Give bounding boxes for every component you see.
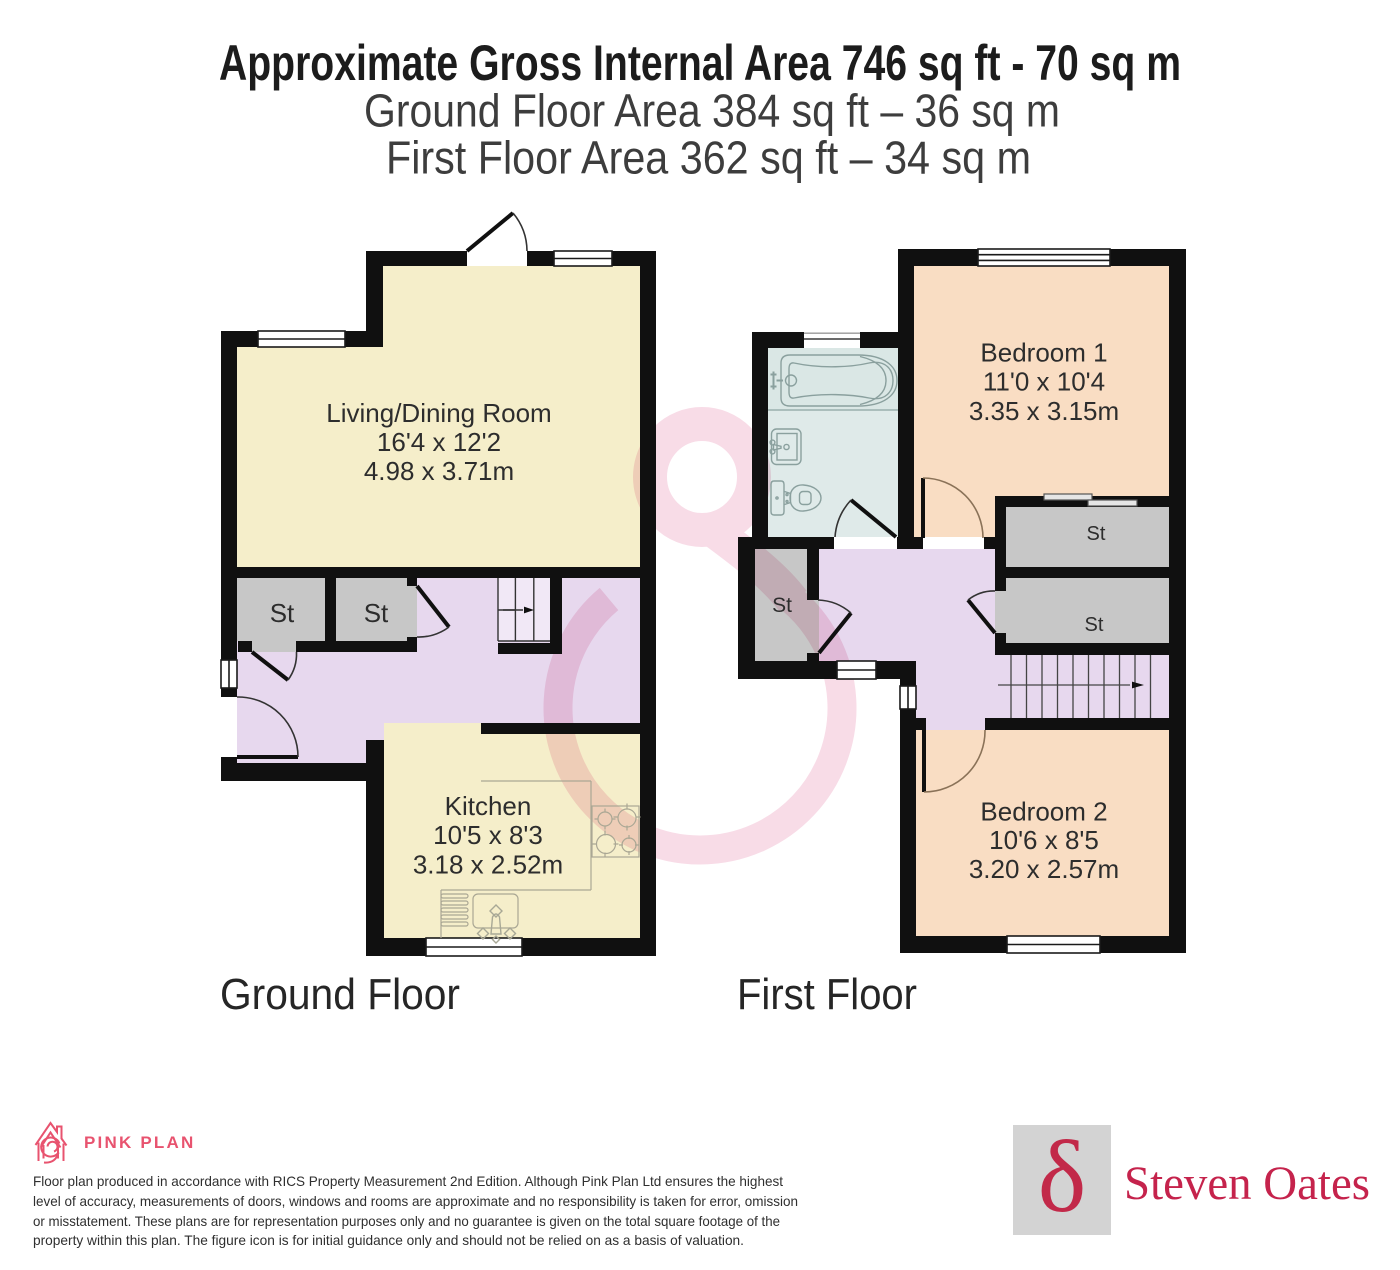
svg-text:St: St	[270, 598, 295, 628]
svg-text:3.35 x 3.15m: 3.35 x 3.15m	[969, 396, 1119, 426]
svg-text:10'6 x 8'5: 10'6 x 8'5	[989, 825, 1099, 855]
svg-text:Bedroom 1: Bedroom 1	[980, 338, 1107, 368]
svg-text:δ: δ	[1038, 1120, 1087, 1234]
svg-text:First Floor Area 362 sq ft – 3: First Floor Area 362 sq ft – 34 sq m	[386, 132, 1031, 184]
svg-text:Ground Floor: Ground Floor	[220, 970, 460, 1019]
svg-text:10'5 x 8'3: 10'5 x 8'3	[433, 820, 543, 850]
svg-text:St: St	[364, 598, 389, 628]
svg-text:3.20 x 2.57m: 3.20 x 2.57m	[969, 854, 1119, 884]
svg-text:4.98 x 3.71m: 4.98 x 3.71m	[364, 456, 514, 486]
svg-text:property within this plan. The: property within this plan. The figure ic…	[33, 1232, 744, 1248]
svg-text:Kitchen: Kitchen	[445, 791, 532, 821]
svg-text:Steven Oates: Steven Oates	[1124, 1157, 1370, 1210]
svg-text:First Floor: First Floor	[737, 970, 917, 1019]
svg-text:level of accuracy, measurement: level of accuracy, measurements of doors…	[33, 1193, 798, 1209]
svg-text:Floor plan produced in accorda: Floor plan produced in accordance with R…	[33, 1173, 783, 1189]
svg-text:16'4 x 12'2: 16'4 x 12'2	[377, 427, 501, 457]
svg-text:St: St	[1085, 614, 1104, 636]
svg-text:PINK PLAN: PINK PLAN	[84, 1133, 195, 1152]
svg-text:Living/Dining Room: Living/Dining Room	[326, 398, 551, 428]
svg-text:or misstatement. These plans a: or misstatement. These plans are for rep…	[33, 1213, 780, 1229]
svg-text:3.18 x 2.52m: 3.18 x 2.52m	[413, 850, 563, 880]
svg-text:St: St	[1087, 523, 1106, 545]
svg-text:Ground Floor Area 384 sq ft –: Ground Floor Area 384 sq ft – 36 sq m	[364, 85, 1060, 137]
svg-text:Approximate Gross Internal Are: Approximate Gross Internal Area 746 sq f…	[219, 35, 1181, 91]
svg-text:St: St	[772, 594, 792, 617]
svg-text:Bedroom 2: Bedroom 2	[980, 797, 1107, 827]
svg-text:11'0 x 10'4: 11'0 x 10'4	[983, 367, 1105, 397]
